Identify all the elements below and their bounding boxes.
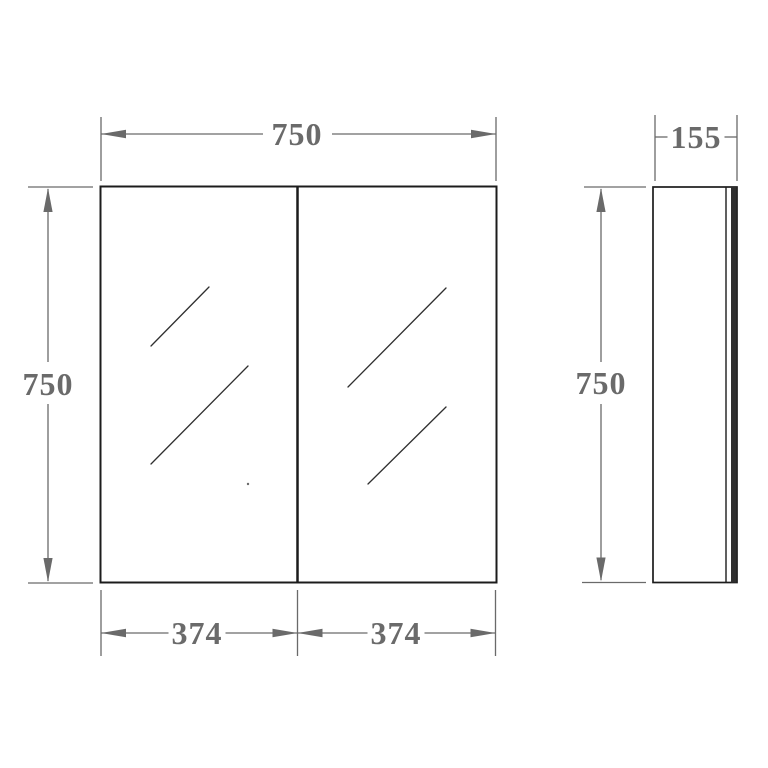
front-view [101, 187, 497, 583]
side-view [653, 187, 737, 583]
side-view-mirror-panel [731, 187, 737, 583]
speck-dot [247, 483, 249, 485]
arrow-up-icon [43, 188, 52, 212]
mirror-reflection-line [151, 287, 209, 346]
left-door-width-label: 374 [169, 617, 226, 649]
arrow-down-icon [43, 558, 52, 582]
arrow-right-icon [471, 130, 496, 139]
arrow-down-icon [596, 558, 605, 582]
right-door-width-label: 374 [368, 617, 425, 649]
mirror-reflection-line [348, 288, 446, 387]
arrow-left-icon [298, 629, 323, 638]
side-depth-label: 155 [668, 121, 725, 153]
arrow-left-icon [101, 130, 126, 139]
side-height-label: 750 [573, 367, 630, 399]
front-width-label: 750 [269, 118, 326, 150]
dim-door-widths [101, 590, 496, 656]
mirror-reflection-line [368, 407, 446, 484]
technical-drawing-canvas: 750 750 374 374 155 750 [0, 0, 768, 768]
arrow-up-icon [596, 188, 605, 212]
drawing-svg [0, 0, 768, 768]
arrow-right-icon [273, 629, 298, 638]
arrow-right-icon [471, 629, 496, 638]
front-height-label: 750 [20, 368, 77, 400]
side-view-outline [653, 187, 737, 583]
mirror-reflection-line [151, 366, 248, 464]
arrow-left-icon [101, 629, 126, 638]
